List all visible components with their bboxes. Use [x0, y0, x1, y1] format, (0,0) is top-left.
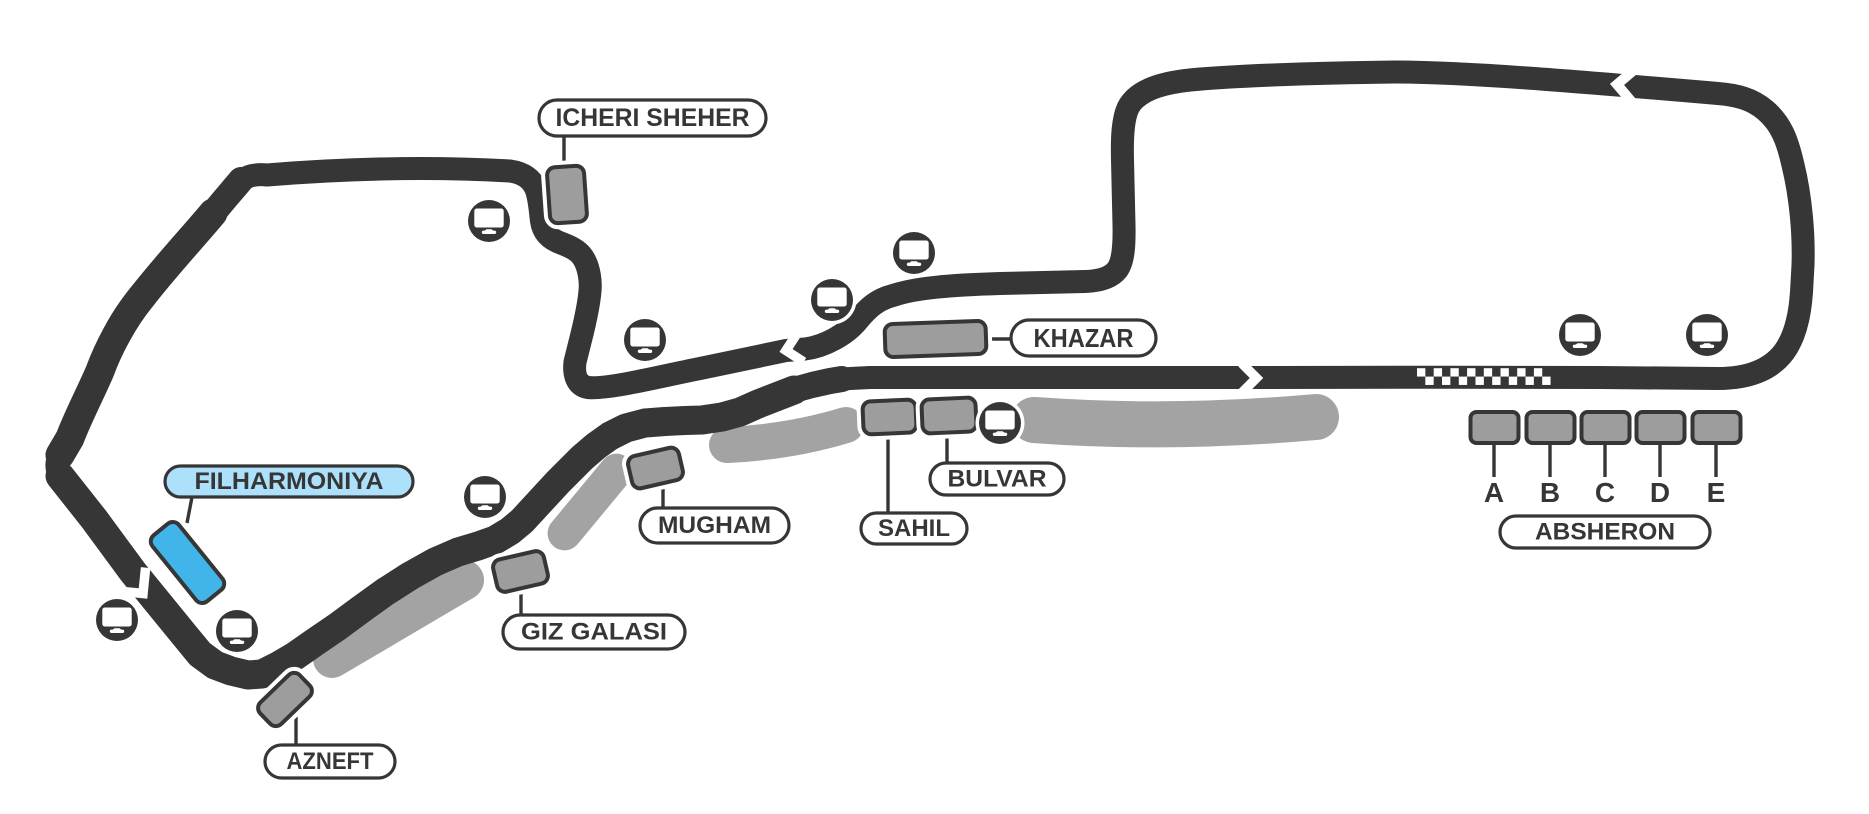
svg-text:ICHERI SHEHER: ICHERI SHEHER: [556, 104, 750, 132]
svg-text:SAHIL: SAHIL: [878, 515, 950, 542]
svg-text:B: B: [1540, 477, 1560, 508]
svg-text:FILHARMONIYA: FILHARMONIYA: [195, 468, 384, 495]
svg-text:A: A: [1484, 477, 1504, 508]
svg-text:MUGHAM: MUGHAM: [658, 512, 771, 539]
svg-text:D: D: [1650, 477, 1670, 508]
svg-text:C: C: [1595, 477, 1615, 508]
svg-text:KHAZAR: KHAZAR: [1034, 323, 1134, 353]
svg-text:ABSHERON: ABSHERON: [1535, 519, 1675, 546]
svg-text:GIZ GALASI: GIZ GALASI: [521, 619, 667, 646]
svg-text:BULVAR: BULVAR: [948, 466, 1047, 493]
svg-text:AZNEFT: AZNEFT: [287, 748, 374, 775]
svg-text:E: E: [1707, 477, 1726, 508]
